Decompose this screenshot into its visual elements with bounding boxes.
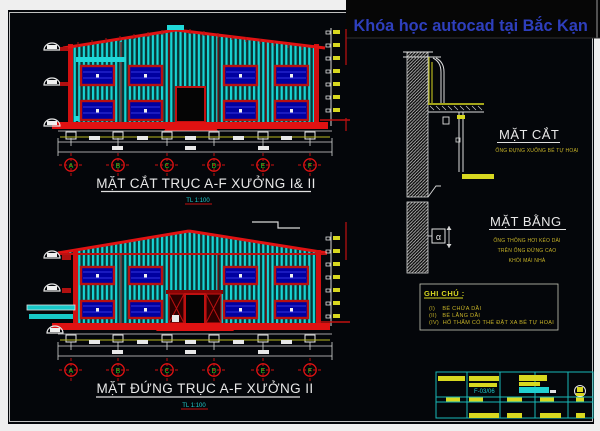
svg-text:(IV) HỐ THẤM CÓ THỂ ĐẶT XA BỂ: (IV) HỐ THẤM CÓ THỂ ĐẶT XA BỂ TỰ HOẠI bbox=[429, 319, 554, 326]
svg-text:E: E bbox=[261, 163, 266, 170]
svg-text:B: B bbox=[116, 163, 121, 170]
svg-text:(II) BỂ LẮNG DẦI: (II) BỂ LẮNG DẦI bbox=[429, 311, 480, 319]
svg-text:ỐNG ĐỰNG XUỐNG BỂ TỰ HOẠI: ỐNG ĐỰNG XUỐNG BỂ TỰ HOẠI bbox=[495, 147, 578, 154]
svg-text:MẶT ĐỨNG TRỤC A-F XƯỞNG II: MẶT ĐỨNG TRỤC A-F XƯỞNG II bbox=[96, 381, 313, 396]
svg-text:D: D bbox=[211, 368, 216, 375]
svg-text:E: E bbox=[261, 368, 266, 375]
svg-text:α: α bbox=[436, 232, 441, 242]
svg-text:MẶT BẰNG: MẶT BẰNG bbox=[490, 214, 562, 229]
svg-text:A: A bbox=[69, 163, 74, 170]
svg-text:KHỎI MÁI NHÀ: KHỎI MÁI NHÀ bbox=[509, 257, 546, 264]
svg-text:TRÊN ỐNG ĐỨNG CAO: TRÊN ỐNG ĐỨNG CAO bbox=[498, 246, 557, 254]
svg-text:F-03/06: F-03/06 bbox=[474, 389, 495, 395]
svg-text:D: D bbox=[211, 163, 216, 170]
svg-text:MẶT CẮT: MẶT CẮT bbox=[499, 127, 559, 142]
svg-text:C: C bbox=[164, 163, 169, 170]
svg-text:ỐNG THÔNG HƠI KÉO DÀI: ỐNG THÔNG HƠI KÉO DÀI bbox=[493, 237, 560, 244]
svg-text:TL 1:100: TL 1:100 bbox=[182, 403, 206, 409]
svg-text:C: C bbox=[164, 368, 169, 375]
svg-text:F: F bbox=[308, 368, 312, 375]
svg-text:Khóa học autocad tại Bắc Kạn: Khóa học autocad tại Bắc Kạn bbox=[354, 16, 588, 35]
svg-text:(I) BỂ CHỨA DẦI: (I) BỂ CHỨA DẦI bbox=[429, 305, 481, 312]
svg-text:B: B bbox=[116, 368, 121, 375]
svg-text:A: A bbox=[69, 368, 74, 375]
svg-text:GHI CHÚ :: GHI CHÚ : bbox=[424, 289, 465, 298]
svg-text:TL 1:100: TL 1:100 bbox=[186, 198, 210, 204]
svg-text:MẶT CẮT TRỤC A-F XƯỞNG I& II: MẶT CẮT TRỤC A-F XƯỞNG I& II bbox=[96, 176, 316, 191]
svg-text:F: F bbox=[308, 163, 312, 170]
